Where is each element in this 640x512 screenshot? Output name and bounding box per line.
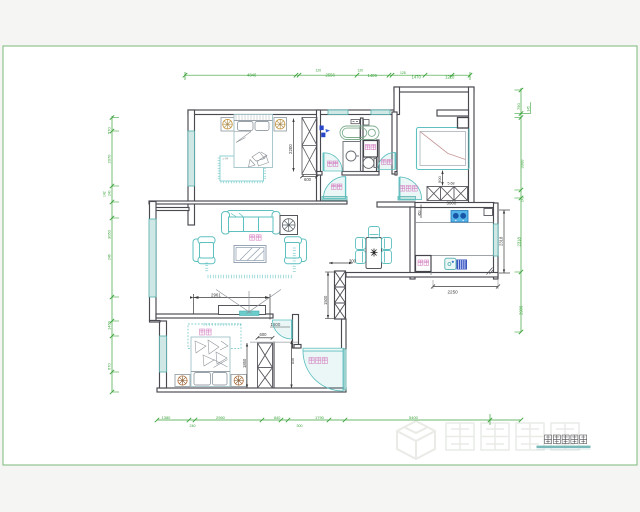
- svg-text:2961: 2961: [211, 293, 221, 298]
- svg-text:2556: 2556: [326, 72, 336, 77]
- svg-text:2318: 2318: [499, 236, 504, 246]
- svg-text:120: 120: [316, 69, 322, 73]
- svg-text:143: 143: [521, 196, 525, 202]
- svg-text:1406: 1406: [368, 73, 378, 78]
- svg-text:846: 846: [291, 358, 295, 364]
- svg-text:600: 600: [304, 177, 312, 182]
- svg-text:1850: 1850: [242, 358, 247, 368]
- svg-text:1460: 1460: [107, 320, 112, 330]
- svg-text:145: 145: [526, 106, 530, 112]
- svg-text:600: 600: [260, 332, 268, 337]
- svg-text:300: 300: [297, 424, 303, 428]
- svg-text:1500: 1500: [323, 295, 328, 305]
- svg-text:120: 120: [358, 69, 364, 73]
- svg-text:1380: 1380: [162, 415, 172, 420]
- svg-text:240: 240: [108, 190, 112, 196]
- svg-text:2250: 2250: [448, 290, 459, 295]
- svg-text:670: 670: [107, 363, 112, 370]
- svg-text:4846: 4846: [247, 72, 257, 77]
- svg-text:c-04: c-04: [223, 157, 229, 161]
- svg-text:3000: 3000: [447, 201, 457, 206]
- svg-text:450: 450: [418, 210, 422, 216]
- svg-text:3300: 3300: [520, 159, 525, 169]
- svg-text:840: 840: [274, 416, 280, 420]
- svg-text:900: 900: [437, 176, 442, 183]
- svg-text:128: 128: [400, 71, 406, 75]
- svg-text:790: 790: [516, 103, 521, 110]
- svg-text:2960: 2960: [216, 415, 226, 420]
- svg-text:142: 142: [103, 191, 107, 197]
- svg-text:1790: 1790: [315, 415, 325, 420]
- svg-text:570: 570: [107, 127, 112, 134]
- svg-text:5.68: 5.68: [448, 182, 455, 186]
- svg-text:246: 246: [108, 254, 112, 260]
- svg-text:300: 300: [349, 259, 357, 264]
- svg-text:5400: 5400: [409, 415, 419, 420]
- svg-text:2070: 2070: [107, 154, 112, 164]
- svg-text:2318: 2318: [517, 237, 522, 247]
- svg-text:3050: 3050: [107, 229, 112, 239]
- svg-text:2900: 2900: [519, 305, 524, 315]
- svg-text:240: 240: [190, 424, 196, 428]
- svg-text:1470: 1470: [412, 74, 422, 79]
- svg-text:1220: 1220: [445, 74, 455, 79]
- svg-text:2200: 2200: [288, 144, 293, 154]
